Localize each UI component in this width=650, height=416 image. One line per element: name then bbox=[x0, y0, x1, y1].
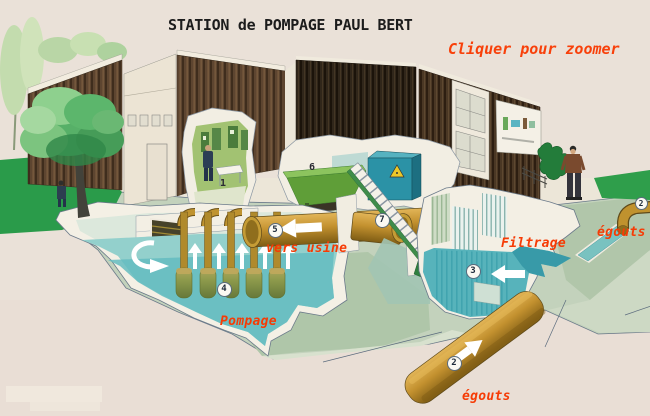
marker-sewer-main: 2 bbox=[447, 356, 462, 371]
marker-discharge-pipe: 5 bbox=[268, 223, 283, 238]
marker-sewer-inlet: 2 bbox=[635, 197, 648, 210]
zoom-hint-text: Cliquer pour zoomer bbox=[448, 40, 620, 58]
entry-door bbox=[147, 144, 167, 200]
marker-screenings-pipe: 7 bbox=[375, 213, 390, 228]
label-pompage: Pompage bbox=[220, 314, 277, 329]
marker-refuse-skip: 6 bbox=[305, 162, 319, 174]
marker-filtration: 3 bbox=[466, 264, 481, 279]
marker-control-room: 1 bbox=[216, 178, 230, 190]
label-egouts-outfall: égouts bbox=[462, 389, 511, 404]
marker-pumps: 4 bbox=[217, 282, 232, 297]
pumping-station-poster[interactable]: STATION de POMPAGE PAUL BERT Cliquer pou… bbox=[0, 0, 650, 416]
label-filtrage: Filtrage bbox=[501, 236, 566, 251]
label-vers-usine: vers usine bbox=[266, 241, 347, 256]
pumping-station-illustration bbox=[0, 0, 650, 416]
building-left-front bbox=[124, 54, 176, 206]
poster-title: STATION de POMPAGE PAUL BERT bbox=[168, 16, 412, 34]
label-egouts-inlet: égouts bbox=[597, 225, 646, 240]
water-step bbox=[474, 282, 500, 305]
